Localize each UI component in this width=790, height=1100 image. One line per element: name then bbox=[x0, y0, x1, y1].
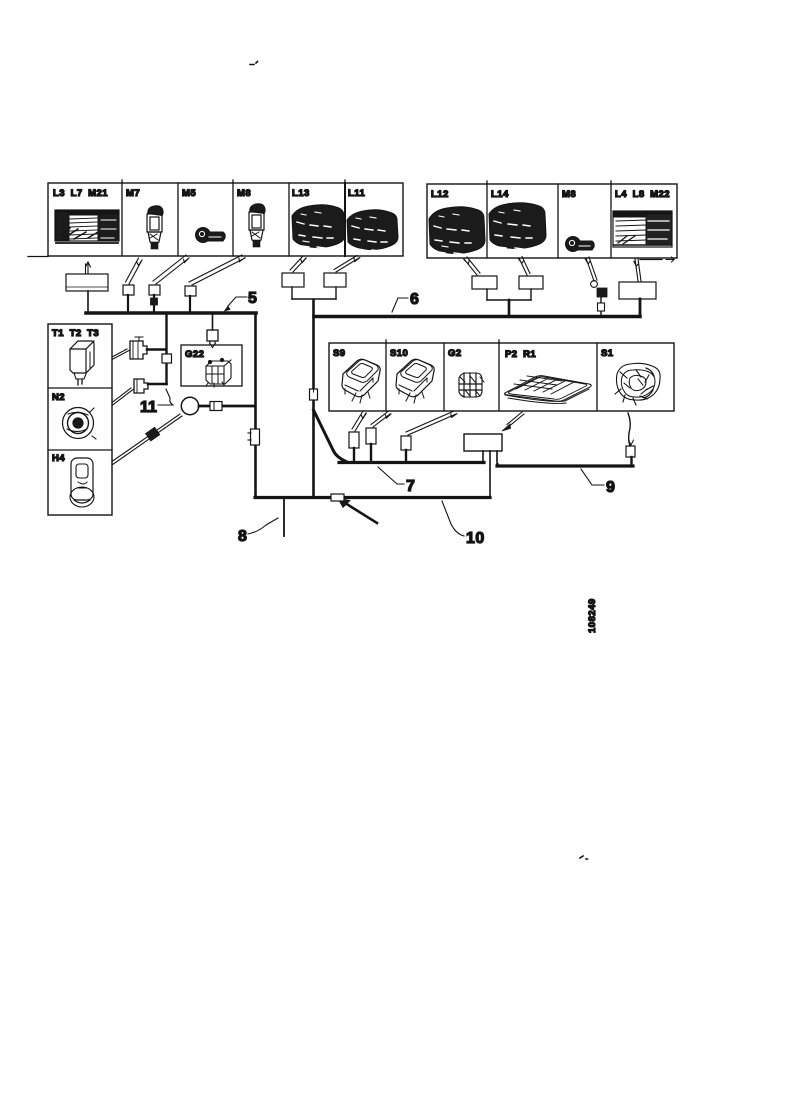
svg-text:8: 8 bbox=[238, 528, 247, 545]
svg-text:N2: N2 bbox=[52, 392, 65, 403]
svg-text:L11: L11 bbox=[348, 188, 365, 199]
svg-text:M8: M8 bbox=[237, 188, 251, 199]
svg-text:L3 L7 M21: L3 L7 M21 bbox=[53, 188, 108, 199]
svg-text:G22: G22 bbox=[185, 349, 204, 360]
svg-text:6: 6 bbox=[410, 291, 419, 308]
svg-text:S1: S1 bbox=[601, 348, 614, 359]
svg-text:9: 9 bbox=[606, 479, 615, 496]
svg-text:S9: S9 bbox=[333, 348, 346, 359]
svg-text:H4: H4 bbox=[52, 453, 65, 464]
svg-text:L4 L8 M22: L4 L8 M22 bbox=[615, 189, 670, 200]
svg-text:M5: M5 bbox=[182, 188, 196, 199]
svg-text:L14: L14 bbox=[491, 189, 509, 200]
svg-text:7: 7 bbox=[406, 478, 415, 495]
svg-text:108249: 108249 bbox=[587, 598, 598, 633]
svg-text:M8: M8 bbox=[562, 189, 576, 200]
svg-text:10: 10 bbox=[466, 530, 485, 547]
svg-text:L12: L12 bbox=[431, 189, 449, 200]
svg-text:5: 5 bbox=[248, 290, 257, 307]
svg-text:T1 T2 T3: T1 T2 T3 bbox=[52, 328, 99, 339]
svg-text:S10: S10 bbox=[390, 348, 408, 359]
svg-text:M7: M7 bbox=[126, 188, 140, 199]
svg-text:11: 11 bbox=[140, 399, 157, 416]
svg-text:G2: G2 bbox=[448, 348, 462, 359]
svg-text:P2 R1: P2 R1 bbox=[505, 349, 536, 360]
svg-text:L13: L13 bbox=[292, 188, 310, 199]
